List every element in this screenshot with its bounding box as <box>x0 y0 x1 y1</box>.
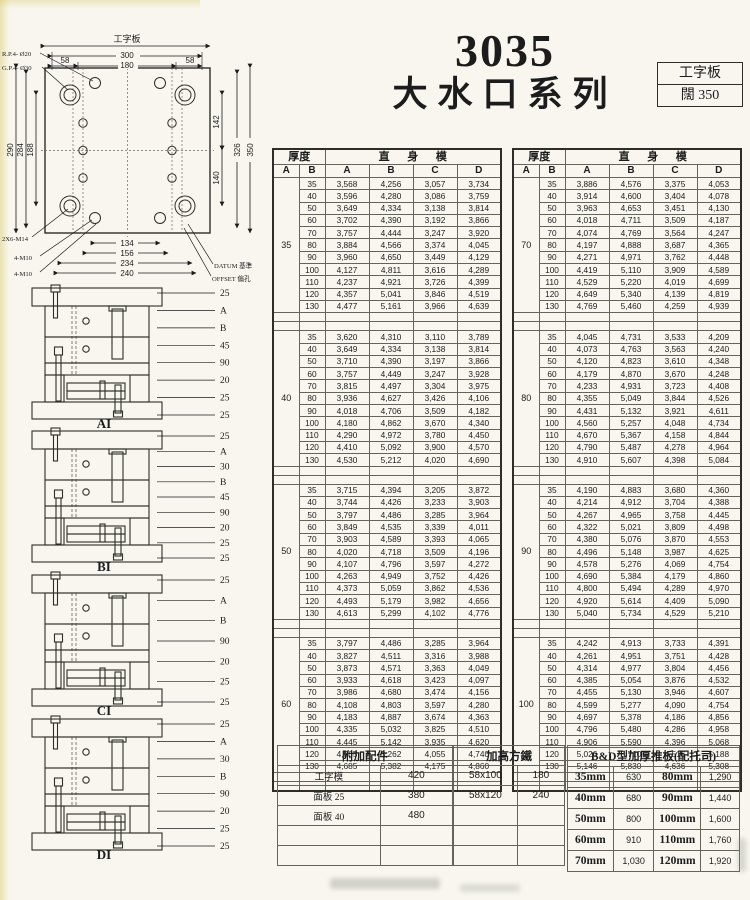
empty-cell <box>565 475 609 484</box>
drawing-shape <box>112 740 123 790</box>
table-row: 1304,9105,6074,3985,084 <box>513 454 741 466</box>
scan-smudge <box>460 884 520 892</box>
cell <box>278 826 381 846</box>
drawing-shape <box>100 812 105 830</box>
b-value-cell: 50 <box>539 355 565 367</box>
value-cell: 4,497 <box>369 380 413 392</box>
value-cell: 4,560 <box>565 417 609 429</box>
value-cell: 4,639 <box>457 300 501 312</box>
value-cell: 3,138 <box>413 343 457 355</box>
table-row: 1305,0405,7344,5295,210 <box>513 607 741 619</box>
group-thickness-cell: 70 <box>513 178 539 313</box>
callout-label: 30 <box>220 755 230 765</box>
b-value-cell: 50 <box>539 662 565 674</box>
callout-label: 25 <box>220 842 230 852</box>
b-value-cell: 100 <box>299 570 325 582</box>
empty-cell <box>565 313 609 322</box>
value-cell: 3,903 <box>457 496 501 508</box>
value-cell: 3,733 <box>653 637 697 649</box>
cell <box>278 846 381 866</box>
table-row: 1104,2904,9723,7804,450 <box>273 429 501 441</box>
drawing-shape <box>100 524 105 542</box>
b-value-cell: 35 <box>539 637 565 649</box>
col-header: A <box>565 165 609 178</box>
value-cell: 4,589 <box>697 264 741 276</box>
value-cell: 4,267 <box>565 509 609 521</box>
table-row: 404,2144,9123,7044,388 <box>513 496 741 508</box>
b-value-cell: 90 <box>539 251 565 263</box>
value-cell: 4,450 <box>457 429 501 441</box>
table-row: 703,8154,4973,3043,975 <box>273 380 501 392</box>
value-cell: 4,020 <box>325 546 369 558</box>
value-cell: 4,912 <box>609 496 653 508</box>
table-row: 604,1794,8703,6704,248 <box>513 368 741 380</box>
note-label: 4-M10 <box>14 271 33 278</box>
value-cell: 3,710 <box>325 355 369 367</box>
drawing-shape <box>42 67 68 90</box>
b-value-cell: 70 <box>299 380 325 392</box>
value-cell: 3,374 <box>413 239 457 251</box>
b-value-cell: 40 <box>299 650 325 662</box>
col-header: A <box>273 165 299 178</box>
table-row: 904,1834,8873,6744,363 <box>273 711 501 723</box>
value-cell: 3,564 <box>653 227 697 239</box>
group-thickness-cell: 50 <box>273 484 299 619</box>
b-value-cell: 70 <box>539 227 565 239</box>
value-cell: 4,183 <box>325 711 369 723</box>
b-value-cell: 35 <box>539 331 565 343</box>
value-cell: 4,385 <box>565 674 609 686</box>
drawing-shape <box>32 572 162 706</box>
cell <box>454 846 518 866</box>
b-value-cell: 120 <box>539 288 565 300</box>
value-cell: 4,120 <box>565 355 609 367</box>
cell: 1,920 <box>701 851 740 872</box>
table-row: 1004,1804,8623,6704,340 <box>273 417 501 429</box>
empty-cell <box>325 313 369 322</box>
value-cell: 5,277 <box>609 699 653 711</box>
table-row: 80354,0454,7313,5334,209 <box>513 331 741 343</box>
b-value-cell: 90 <box>299 711 325 723</box>
straight-mold-header: 直身模 <box>565 149 741 165</box>
table-row: 604,3855,0543,8764,532 <box>513 674 741 686</box>
drawing-shape <box>112 596 123 646</box>
value-cell: 4,045 <box>565 331 609 343</box>
spacer-row <box>513 475 741 484</box>
empty-cell <box>609 475 653 484</box>
table-row: 704,3805,0763,8704,553 <box>513 533 741 545</box>
table-row: 503,7974,4863,2853,964 <box>273 509 501 521</box>
cell: 1,030 <box>613 851 654 872</box>
value-cell: 5,054 <box>609 674 653 686</box>
value-cell: 4,179 <box>565 368 609 380</box>
cell: 35mm <box>568 767 614 788</box>
value-cell: 4,493 <box>325 595 369 607</box>
value-cell: 4,053 <box>697 178 741 190</box>
mold-side-view-bi: 25A30B4590202525BI <box>12 426 267 572</box>
empty-cell <box>609 619 653 628</box>
drawing-shape <box>83 346 89 352</box>
value-cell: 4,949 <box>369 570 413 582</box>
empty-cell <box>539 313 565 322</box>
empty-cell <box>413 619 457 628</box>
empty-cell <box>369 475 413 484</box>
b-value-cell: 90 <box>539 711 565 723</box>
drawing-shape <box>56 498 61 544</box>
empty-cell <box>513 475 539 484</box>
cell: 80mm <box>654 767 701 788</box>
value-cell: 3,449 <box>413 251 457 263</box>
col-header: D <box>697 165 741 178</box>
b-value-cell: 80 <box>539 546 565 558</box>
value-cell: 4,289 <box>457 264 501 276</box>
value-cell: 4,019 <box>653 276 697 288</box>
empty-cell <box>565 619 609 628</box>
value-cell: 4,334 <box>369 343 413 355</box>
table-row: 704,0744,7693,5644,247 <box>513 227 741 239</box>
table-row: 604,3225,0213,8094,498 <box>513 521 741 533</box>
value-cell: 3,744 <box>325 496 369 508</box>
table-row: 工字模420 <box>278 766 453 786</box>
table-row: 1004,6905,3844,1794,860 <box>513 570 741 582</box>
value-cell: 3,789 <box>457 331 501 343</box>
value-cell: 5,257 <box>609 417 653 429</box>
table-row: 704,4555,1303,9464,607 <box>513 686 741 698</box>
drawing-shape: 厚度直身模ABABCD35353,5684,2563,0573,734403,5… <box>273 149 501 791</box>
value-cell: 5,032 <box>369 723 413 735</box>
value-cell: 4,711 <box>609 214 653 226</box>
value-cell: 4,065 <box>457 533 501 545</box>
cell: 58x100 <box>454 766 518 786</box>
table-row: 403,9144,6003,4044,078 <box>513 190 741 202</box>
value-cell: 3,404 <box>653 190 697 202</box>
value-cell: 4,578 <box>565 558 609 570</box>
callout-label: B <box>220 324 226 334</box>
callout-label: 90 <box>220 508 230 518</box>
drawing-shape <box>83 318 89 324</box>
value-cell: 4,399 <box>457 276 501 288</box>
empty-cell <box>273 628 299 637</box>
value-cell: 4,196 <box>457 546 501 558</box>
value-cell: 4,334 <box>369 202 413 214</box>
value-cell: 4,913 <box>609 637 653 649</box>
empty-cell <box>369 619 413 628</box>
table-row: 70353,8864,5763,3754,053 <box>513 178 741 190</box>
value-cell: 4,078 <box>697 190 741 202</box>
value-cell: 3,597 <box>413 699 457 711</box>
drawing-shape <box>56 786 61 832</box>
value-cell: 4,690 <box>457 454 501 466</box>
empty-cell <box>539 466 565 475</box>
value-cell: 4,129 <box>457 251 501 263</box>
value-cell: 3,247 <box>413 227 457 239</box>
empty-cell <box>697 475 741 484</box>
b-value-cell: 50 <box>539 202 565 214</box>
empty-cell <box>565 322 609 331</box>
value-cell: 4,613 <box>325 607 369 619</box>
b-value-cell: 100 <box>299 264 325 276</box>
value-cell: 3,620 <box>325 331 369 343</box>
value-cell: 4,486 <box>369 637 413 649</box>
value-cell: 4,363 <box>457 711 501 723</box>
empty-cell <box>513 628 539 637</box>
value-cell: 4,618 <box>369 674 413 686</box>
empty-cell <box>413 628 457 637</box>
value-cell: 4,763 <box>609 343 653 355</box>
value-cell: 3,616 <box>413 264 457 276</box>
b-value-cell: 35 <box>299 331 325 343</box>
value-cell: 5,161 <box>369 300 413 312</box>
drawing-shape <box>112 309 123 359</box>
value-cell: 4,156 <box>457 686 501 698</box>
value-cell: 4,589 <box>369 533 413 545</box>
spec-table: 厚度直身模ABABCD70353,8864,5763,3754,053403,9… <box>512 148 742 792</box>
value-cell: 4,380 <box>565 533 609 545</box>
empty-cell <box>565 466 609 475</box>
value-cell: 4,910 <box>565 454 609 466</box>
b-value-cell: 60 <box>299 521 325 533</box>
value-cell: 5,607 <box>609 454 653 466</box>
table-row: 804,0204,7183,5094,196 <box>273 546 501 558</box>
spacer-row <box>273 313 501 322</box>
cell <box>454 826 518 846</box>
value-cell: 5,049 <box>609 392 653 404</box>
table-row: 1004,2634,9493,7524,426 <box>273 570 501 582</box>
value-cell: 4,390 <box>369 355 413 367</box>
scan-smudge <box>738 838 746 872</box>
b-value-cell: 70 <box>299 686 325 698</box>
value-cell: 3,844 <box>653 392 697 404</box>
cell: 40mm <box>568 788 614 809</box>
callout-label: 90 <box>220 790 230 800</box>
callout-label: 30 <box>220 463 230 473</box>
drawing-shape <box>130 662 149 689</box>
empty-cell <box>273 466 299 475</box>
value-cell: 4,536 <box>457 582 501 594</box>
b-value-cell: 100 <box>299 417 325 429</box>
callout-label: B <box>220 478 226 488</box>
empty-cell <box>565 628 609 637</box>
value-cell: 3,866 <box>457 214 501 226</box>
b-value-cell: 80 <box>299 546 325 558</box>
col-header: A <box>325 165 369 178</box>
cell: 680 <box>613 788 654 809</box>
mold-side-view-di: 25A30B90202525DI <box>12 714 267 860</box>
empty-cell <box>299 322 325 331</box>
drawing-shape <box>32 428 162 562</box>
empty-cell <box>299 628 325 637</box>
value-cell: 3,780 <box>413 429 457 441</box>
b-value-cell: 60 <box>539 368 565 380</box>
value-cell: 3,757 <box>325 368 369 380</box>
value-cell: 4,289 <box>653 582 697 594</box>
value-cell: 5,367 <box>609 429 653 441</box>
drawing-shape <box>60 85 80 105</box>
b-value-cell: 110 <box>539 429 565 441</box>
value-cell: 5,040 <box>565 607 609 619</box>
callout-label: B <box>220 772 226 782</box>
value-cell: 4,107 <box>325 558 369 570</box>
mold-side-view-ci: 25AB90202525CI <box>12 570 267 716</box>
empty-cell <box>539 322 565 331</box>
callout-label: 25 <box>220 554 230 564</box>
value-cell: 4,887 <box>369 711 413 723</box>
spec-table-left: 厚度直身模ABABCD35353,5684,2563,0573,734403,5… <box>272 148 502 792</box>
b-value-cell: 70 <box>539 533 565 545</box>
spacer-row <box>273 475 501 484</box>
value-cell: 3,674 <box>413 711 457 723</box>
table-row: 904,0184,7063,5094,182 <box>273 405 501 417</box>
value-cell: 5,179 <box>369 595 413 607</box>
value-cell: 4,020 <box>413 454 457 466</box>
value-cell: 3,597 <box>413 558 457 570</box>
value-cell: 4,445 <box>697 509 741 521</box>
empty-cell <box>653 628 697 637</box>
drawing-shape <box>184 228 211 276</box>
empty-cell <box>413 466 457 475</box>
value-cell: 4,355 <box>565 392 609 404</box>
value-cell: 3,809 <box>653 521 697 533</box>
empty-cell <box>539 628 565 637</box>
cell <box>517 826 564 846</box>
riser-block-table: 加高方鐵58x10018058x120240 <box>453 745 565 866</box>
empty-cell <box>513 322 539 331</box>
value-cell: 4,049 <box>457 662 501 674</box>
table-row: 1304,5305,2124,0204,690 <box>273 454 501 466</box>
value-cell: 3,670 <box>653 368 697 380</box>
value-cell: 3,752 <box>413 570 457 582</box>
cell: 180 <box>517 766 564 786</box>
view-label: DI <box>97 847 111 862</box>
empty-cell <box>369 313 413 322</box>
col-header: B <box>369 165 413 178</box>
table-row: 1204,4105,0923,9004,570 <box>273 441 501 453</box>
mold-section-drawing: 25A30B4590202525BI <box>12 426 267 574</box>
value-cell: 4,718 <box>369 546 413 558</box>
empty-cell <box>609 466 653 475</box>
drawing-shape <box>56 642 61 688</box>
b-value-cell: 60 <box>539 214 565 226</box>
value-cell: 5,276 <box>609 558 653 570</box>
table-row: 面板 40480 <box>278 806 453 826</box>
value-cell: 4,428 <box>697 650 741 662</box>
value-cell: 4,360 <box>697 484 741 496</box>
b-value-cell: 110 <box>539 276 565 288</box>
b-value-cell: 40 <box>299 190 325 202</box>
b-value-cell: 40 <box>539 650 565 662</box>
b-value-cell: 60 <box>299 674 325 686</box>
table-row: 403,8274,5113,3163,988 <box>273 650 501 662</box>
value-cell: 4,106 <box>457 392 501 404</box>
dim-label: 284 <box>16 143 25 157</box>
empty-cell <box>325 619 369 628</box>
empty-cell <box>609 313 653 322</box>
table-title: B&D型加厚推板(配托司) <box>568 746 740 767</box>
value-cell: 4,510 <box>457 723 501 735</box>
empty-cell <box>653 322 697 331</box>
table-row: 1004,1274,8113,6164,289 <box>273 264 501 276</box>
table-row: 803,9364,6273,4264,106 <box>273 392 501 404</box>
value-cell: 4,048 <box>653 417 697 429</box>
drawing-shape <box>67 526 125 534</box>
drawing-shape <box>67 822 125 830</box>
empty-cell <box>325 322 369 331</box>
callout-label: 25 <box>220 720 230 730</box>
mold-side-view-ai: 25AB4590202525AI <box>12 283 267 429</box>
drawing-shape <box>83 605 89 611</box>
table-row: 1104,5295,2204,0194,699 <box>513 276 741 288</box>
cell: 90mm <box>654 788 701 809</box>
empty-cell <box>299 466 325 475</box>
callout-label: A <box>220 737 227 747</box>
value-cell: 4,310 <box>369 331 413 343</box>
table-row: 403,7444,4263,2333,903 <box>273 496 501 508</box>
b-value-cell: 130 <box>539 454 565 466</box>
value-cell: 4,410 <box>325 441 369 453</box>
table-row: 503,8734,5713,3634,049 <box>273 662 501 674</box>
callout-label: 25 <box>220 576 230 586</box>
b-value-cell: 110 <box>539 582 565 594</box>
drawing-shape <box>90 78 101 89</box>
drawing-shape <box>40 224 96 272</box>
value-cell: 4,690 <box>565 570 609 582</box>
callout-label: A <box>220 306 227 316</box>
col-header: B <box>609 165 653 178</box>
value-cell: 4,888 <box>609 239 653 251</box>
callout-label: A <box>220 596 227 606</box>
value-cell: 3,825 <box>413 723 457 735</box>
value-cell: 4,209 <box>697 331 741 343</box>
value-cell: 4,971 <box>609 251 653 263</box>
table-row: 603,9334,6183,4234,097 <box>273 674 501 686</box>
value-cell: 3,903 <box>325 533 369 545</box>
cell: 110mm <box>654 830 701 851</box>
value-cell: 5,220 <box>609 276 653 288</box>
value-cell: 4,455 <box>565 686 609 698</box>
value-cell: 4,278 <box>653 441 697 453</box>
group-thickness-cell: 40 <box>273 331 299 466</box>
group-thickness-cell: 90 <box>513 484 539 619</box>
cell: 70mm <box>568 851 614 872</box>
drawing-shape <box>55 347 63 355</box>
table-row: 804,5995,2774,0904,754 <box>513 699 741 711</box>
drawing-shape <box>56 355 61 401</box>
cell: 1,440 <box>701 788 740 809</box>
thickness-header: 厚度 <box>273 149 325 165</box>
empty-cell <box>697 628 741 637</box>
callout-label: 25 <box>220 698 230 708</box>
value-cell: 3,426 <box>413 392 457 404</box>
value-cell: 3,509 <box>653 214 697 226</box>
value-cell: 3,960 <box>325 251 369 263</box>
table-row: 804,1084,8033,5974,280 <box>273 699 501 711</box>
empty-cell <box>609 628 653 637</box>
value-cell: 4,090 <box>653 699 697 711</box>
value-cell: 3,451 <box>653 202 697 214</box>
value-cell: 5,076 <box>609 533 653 545</box>
table-row: 面板 25380 <box>278 786 453 806</box>
value-cell: 4,448 <box>697 251 741 263</box>
value-cell: 4,650 <box>369 251 413 263</box>
bottom-table: 加高方鐵58x10018058x120240 <box>453 745 565 866</box>
value-cell: 5,041 <box>369 288 413 300</box>
value-cell: 3,758 <box>653 509 697 521</box>
value-cell: 4,247 <box>697 227 741 239</box>
b-value-cell: 110 <box>299 429 325 441</box>
value-cell: 4,803 <box>369 699 413 711</box>
value-cell: 3,900 <box>413 441 457 453</box>
table-row: 1304,4775,1613,9664,639 <box>273 300 501 312</box>
